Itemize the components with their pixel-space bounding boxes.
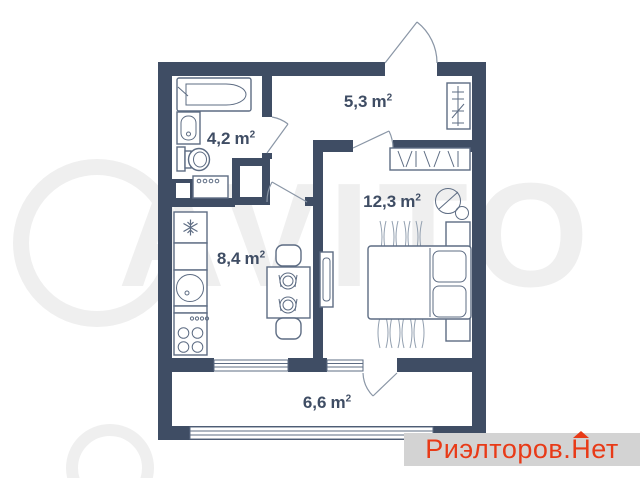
- floor-plan-page: AVITO: [0, 0, 640, 478]
- wall-right: [472, 62, 486, 440]
- hallway-wardrobe: [447, 83, 470, 129]
- balcony-area-value: 6,6: [303, 393, 327, 412]
- wall-bathroom-hall-upper: [262, 76, 272, 117]
- bedroom-window: [327, 360, 363, 371]
- vanity-mirror: [436, 189, 469, 220]
- kitchen-door: [267, 182, 307, 202]
- bathroom-area-sup: 2: [250, 129, 256, 140]
- washing-machine: [193, 176, 228, 198]
- wall-balcony-b: [288, 358, 327, 372]
- balcony-glazing: [190, 427, 433, 439]
- hallway-area-sup: 2: [387, 92, 393, 103]
- wall-kitchen-bedroom: [313, 142, 323, 358]
- logo-house-letter: Н: [571, 436, 591, 463]
- realtor-logo: Риэлторов.Нет: [404, 433, 640, 466]
- stove: [174, 313, 209, 355]
- kitchen-sink: [174, 270, 207, 306]
- chair-top: [276, 245, 301, 266]
- fridge: [174, 212, 207, 243]
- kitchen-area-unit: m: [244, 249, 259, 268]
- kitchen-counter-2: [174, 306, 207, 313]
- bedroom-door: [353, 131, 393, 148]
- kitchen-window: [214, 360, 288, 371]
- wall-balcony-a: [172, 358, 214, 372]
- bedroom-wardrobe: [390, 148, 470, 170]
- room-label-kitchen: 8,4m2: [217, 249, 265, 269]
- wall-top-left: [158, 62, 385, 76]
- balcony-area-sup: 2: [346, 393, 352, 404]
- kitchen-area-value: 8,4: [217, 249, 241, 268]
- hallway-area-unit: m: [371, 92, 386, 111]
- bathroom-area-value: 4,2: [207, 129, 231, 148]
- toilet: [177, 147, 210, 171]
- wall-bathroom-bottom: [172, 198, 235, 207]
- nightstand-top: [446, 222, 470, 247]
- bed: [368, 246, 471, 319]
- hallway-area-value: 5,3: [344, 92, 368, 111]
- washbasin: [177, 112, 200, 144]
- bedroom-area-sup: 2: [415, 192, 421, 203]
- bathroom-area-unit: m: [234, 129, 249, 148]
- room-label-balcony: 6,6m2: [303, 393, 351, 413]
- vent-shaft-core: [240, 166, 262, 197]
- entrance-door: [385, 22, 437, 63]
- wall-balcony-c: [397, 358, 472, 372]
- room-label-bedroom: 12,3m2: [363, 192, 421, 212]
- room-label-bathroom: 4,2m2: [207, 129, 255, 149]
- chair-bottom: [276, 318, 301, 339]
- balcony-area-unit: m: [330, 393, 345, 412]
- wall-left: [158, 62, 172, 440]
- kitchen-counter: [174, 243, 207, 270]
- house-roof-icon: [573, 431, 589, 438]
- corner-shaft-core: [176, 183, 190, 198]
- room-label-hallway: 5,3m2: [344, 92, 392, 112]
- logo-prefix: Риэлторов.: [425, 436, 571, 463]
- kitchen-area-sup: 2: [260, 249, 266, 260]
- tv-panel: [320, 252, 333, 307]
- balcony-door: [363, 373, 397, 396]
- nightstand-bottom: [446, 318, 470, 341]
- logo-suffix: ет: [591, 436, 619, 463]
- bathroom-door: [267, 117, 288, 153]
- bathtub: [177, 78, 251, 111]
- bedroom-area-unit: m: [400, 192, 415, 211]
- bedroom-area-value: 12,3: [363, 192, 396, 211]
- dining-table: [267, 267, 310, 318]
